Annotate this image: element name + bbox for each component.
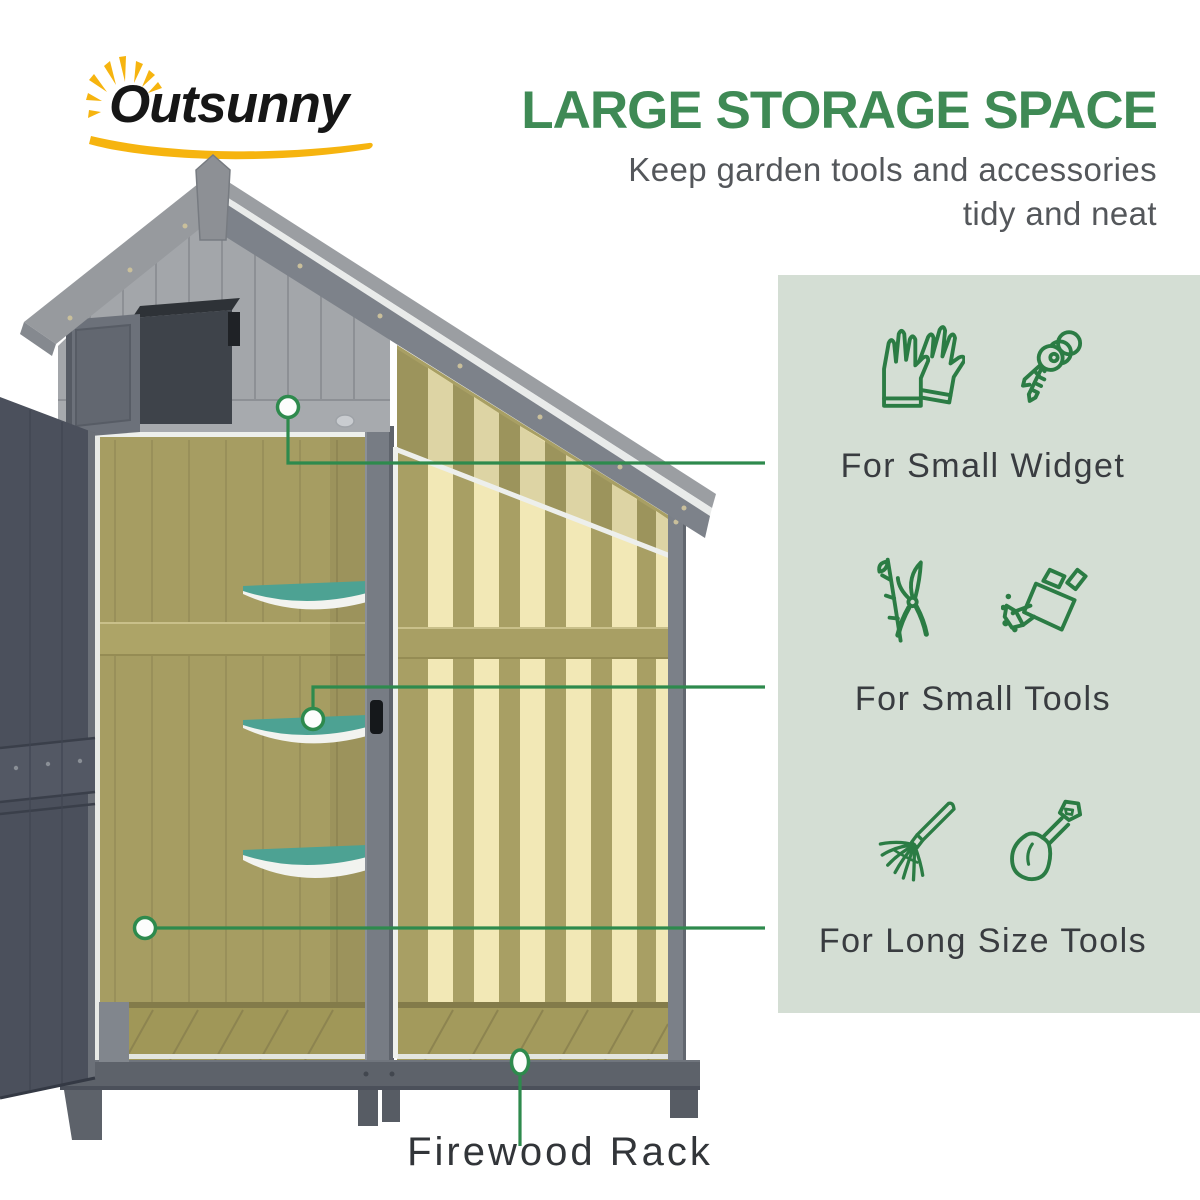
pruning-shears-icon — [873, 556, 965, 648]
window-opening — [132, 310, 232, 424]
feature-small-widget: For Small Widget — [788, 323, 1178, 486]
feature-long-tools: For Long Size Tools — [788, 798, 1178, 961]
feature-icons-row — [788, 798, 1178, 890]
feature-label: For Long Size Tools — [788, 922, 1178, 961]
feature-icons-row — [788, 556, 1178, 648]
callout-long-tools — [135, 918, 766, 939]
shed-main-interior — [95, 430, 365, 1065]
leaf-rake-icon — [873, 798, 965, 890]
shelf-top — [243, 581, 367, 609]
subtitle-line-2: tidy and neat — [628, 192, 1157, 236]
page-title: LARGE STORAGE SPACE — [521, 84, 1157, 137]
features-panel: For Small Widget — [778, 275, 1200, 1013]
callout-small-widget — [278, 397, 766, 464]
callout-dot-2 — [303, 709, 324, 730]
shelf-bottom — [243, 845, 367, 878]
subtitle-line-1: Keep garden tools and accessories — [628, 148, 1157, 192]
feature-icons-row — [788, 323, 1178, 415]
firewood-rack-label: Firewood Rack — [350, 1130, 770, 1175]
turn-latch — [336, 415, 354, 427]
gloves-icon — [873, 323, 965, 415]
keys-icon — [1001, 323, 1093, 415]
open-door — [0, 397, 95, 1098]
leg-middle — [358, 1090, 378, 1126]
callout-dot-3 — [135, 918, 156, 939]
leg-left — [64, 1090, 102, 1140]
callouts — [135, 397, 766, 1147]
window-box — [66, 298, 240, 438]
callout-dot-1 — [278, 397, 299, 418]
feature-label: For Small Widget — [788, 447, 1178, 486]
divider-post — [365, 426, 394, 1065]
logo-text: Outsunny — [109, 78, 348, 131]
front-top-rail — [58, 400, 390, 432]
door-latch — [370, 700, 383, 734]
roof-nails — [68, 224, 687, 511]
roof-left — [24, 172, 243, 344]
window-shutter — [66, 314, 140, 438]
leg-right — [670, 1090, 698, 1118]
page: Outsunny LARGE STORAGE SPACE Keep garden… — [0, 0, 1200, 1200]
page-subtitle: Keep garden tools and accessories tidy a… — [628, 148, 1157, 236]
firewood-floor — [397, 1008, 668, 1062]
callout-dot-4 — [512, 1050, 529, 1074]
roof-finial — [196, 155, 230, 240]
callout-small-tools — [303, 687, 766, 730]
shed-base — [60, 1002, 700, 1140]
gable-wall — [58, 170, 390, 432]
firewood-wall — [393, 345, 678, 1062]
brand-logo: Outsunny — [85, 48, 385, 163]
shelf-middle — [243, 715, 367, 743]
shovel-icon — [1001, 798, 1093, 890]
feature-small-tools: For Small Tools — [788, 556, 1178, 719]
feature-label: For Small Tools — [788, 680, 1178, 719]
watering-can-icon — [1001, 556, 1093, 648]
logo-swoosh — [89, 136, 373, 159]
right-front-post — [668, 508, 686, 1062]
shed-roof — [20, 155, 716, 538]
